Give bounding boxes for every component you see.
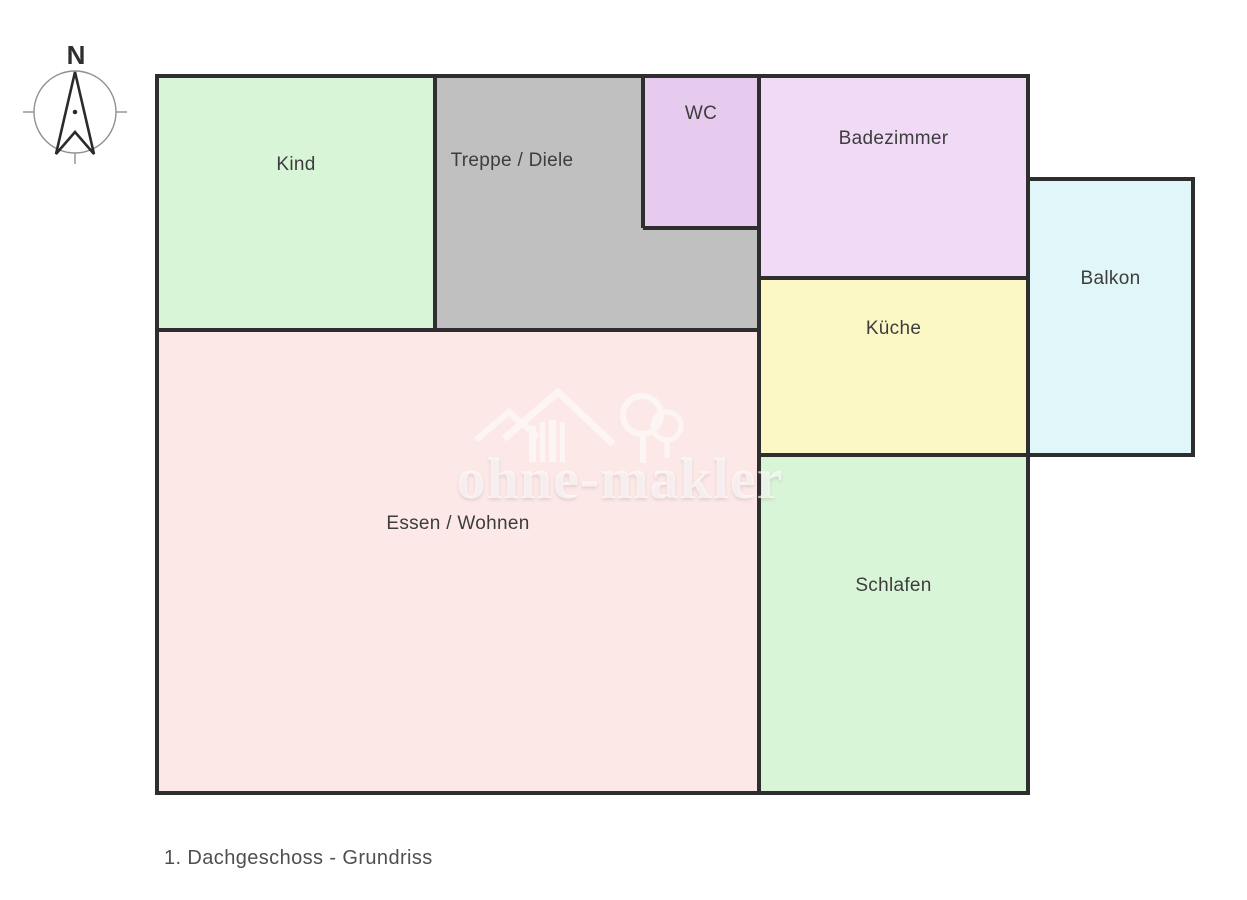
room-kind: Kind bbox=[157, 76, 435, 330]
room-label-badezimmer: Badezimmer bbox=[839, 128, 949, 150]
compass-north-label: N bbox=[64, 40, 88, 71]
room-label-balkon: Balkon bbox=[1081, 268, 1141, 290]
room-schlafen: Schlafen bbox=[759, 455, 1028, 793]
room-badezimmer: Badezimmer bbox=[759, 76, 1028, 278]
room-essen-wohnen: Essen / Wohnen bbox=[157, 330, 759, 793]
room-kueche: Küche bbox=[759, 278, 1028, 455]
room-label-treppe-diele: Treppe / Diele bbox=[451, 150, 574, 172]
compass-rose-graphic bbox=[20, 60, 132, 172]
room-balkon: Balkon bbox=[1028, 179, 1193, 455]
floor-plan-page: N Kind Treppe / Diele WC Badezimmer Balk… bbox=[0, 0, 1247, 900]
room-label-kind: Kind bbox=[276, 154, 315, 176]
room-wc: WC bbox=[643, 76, 759, 228]
floor-caption: 1. Dachgeschoss - Grundriss bbox=[164, 847, 433, 870]
room-label-essen-wohnen: Essen / Wohnen bbox=[386, 513, 529, 535]
room-label-schlafen: Schlafen bbox=[855, 575, 931, 597]
room-label-wc: WC bbox=[685, 103, 717, 125]
room-label-kueche: Küche bbox=[866, 318, 921, 340]
compass-icon bbox=[20, 60, 132, 177]
